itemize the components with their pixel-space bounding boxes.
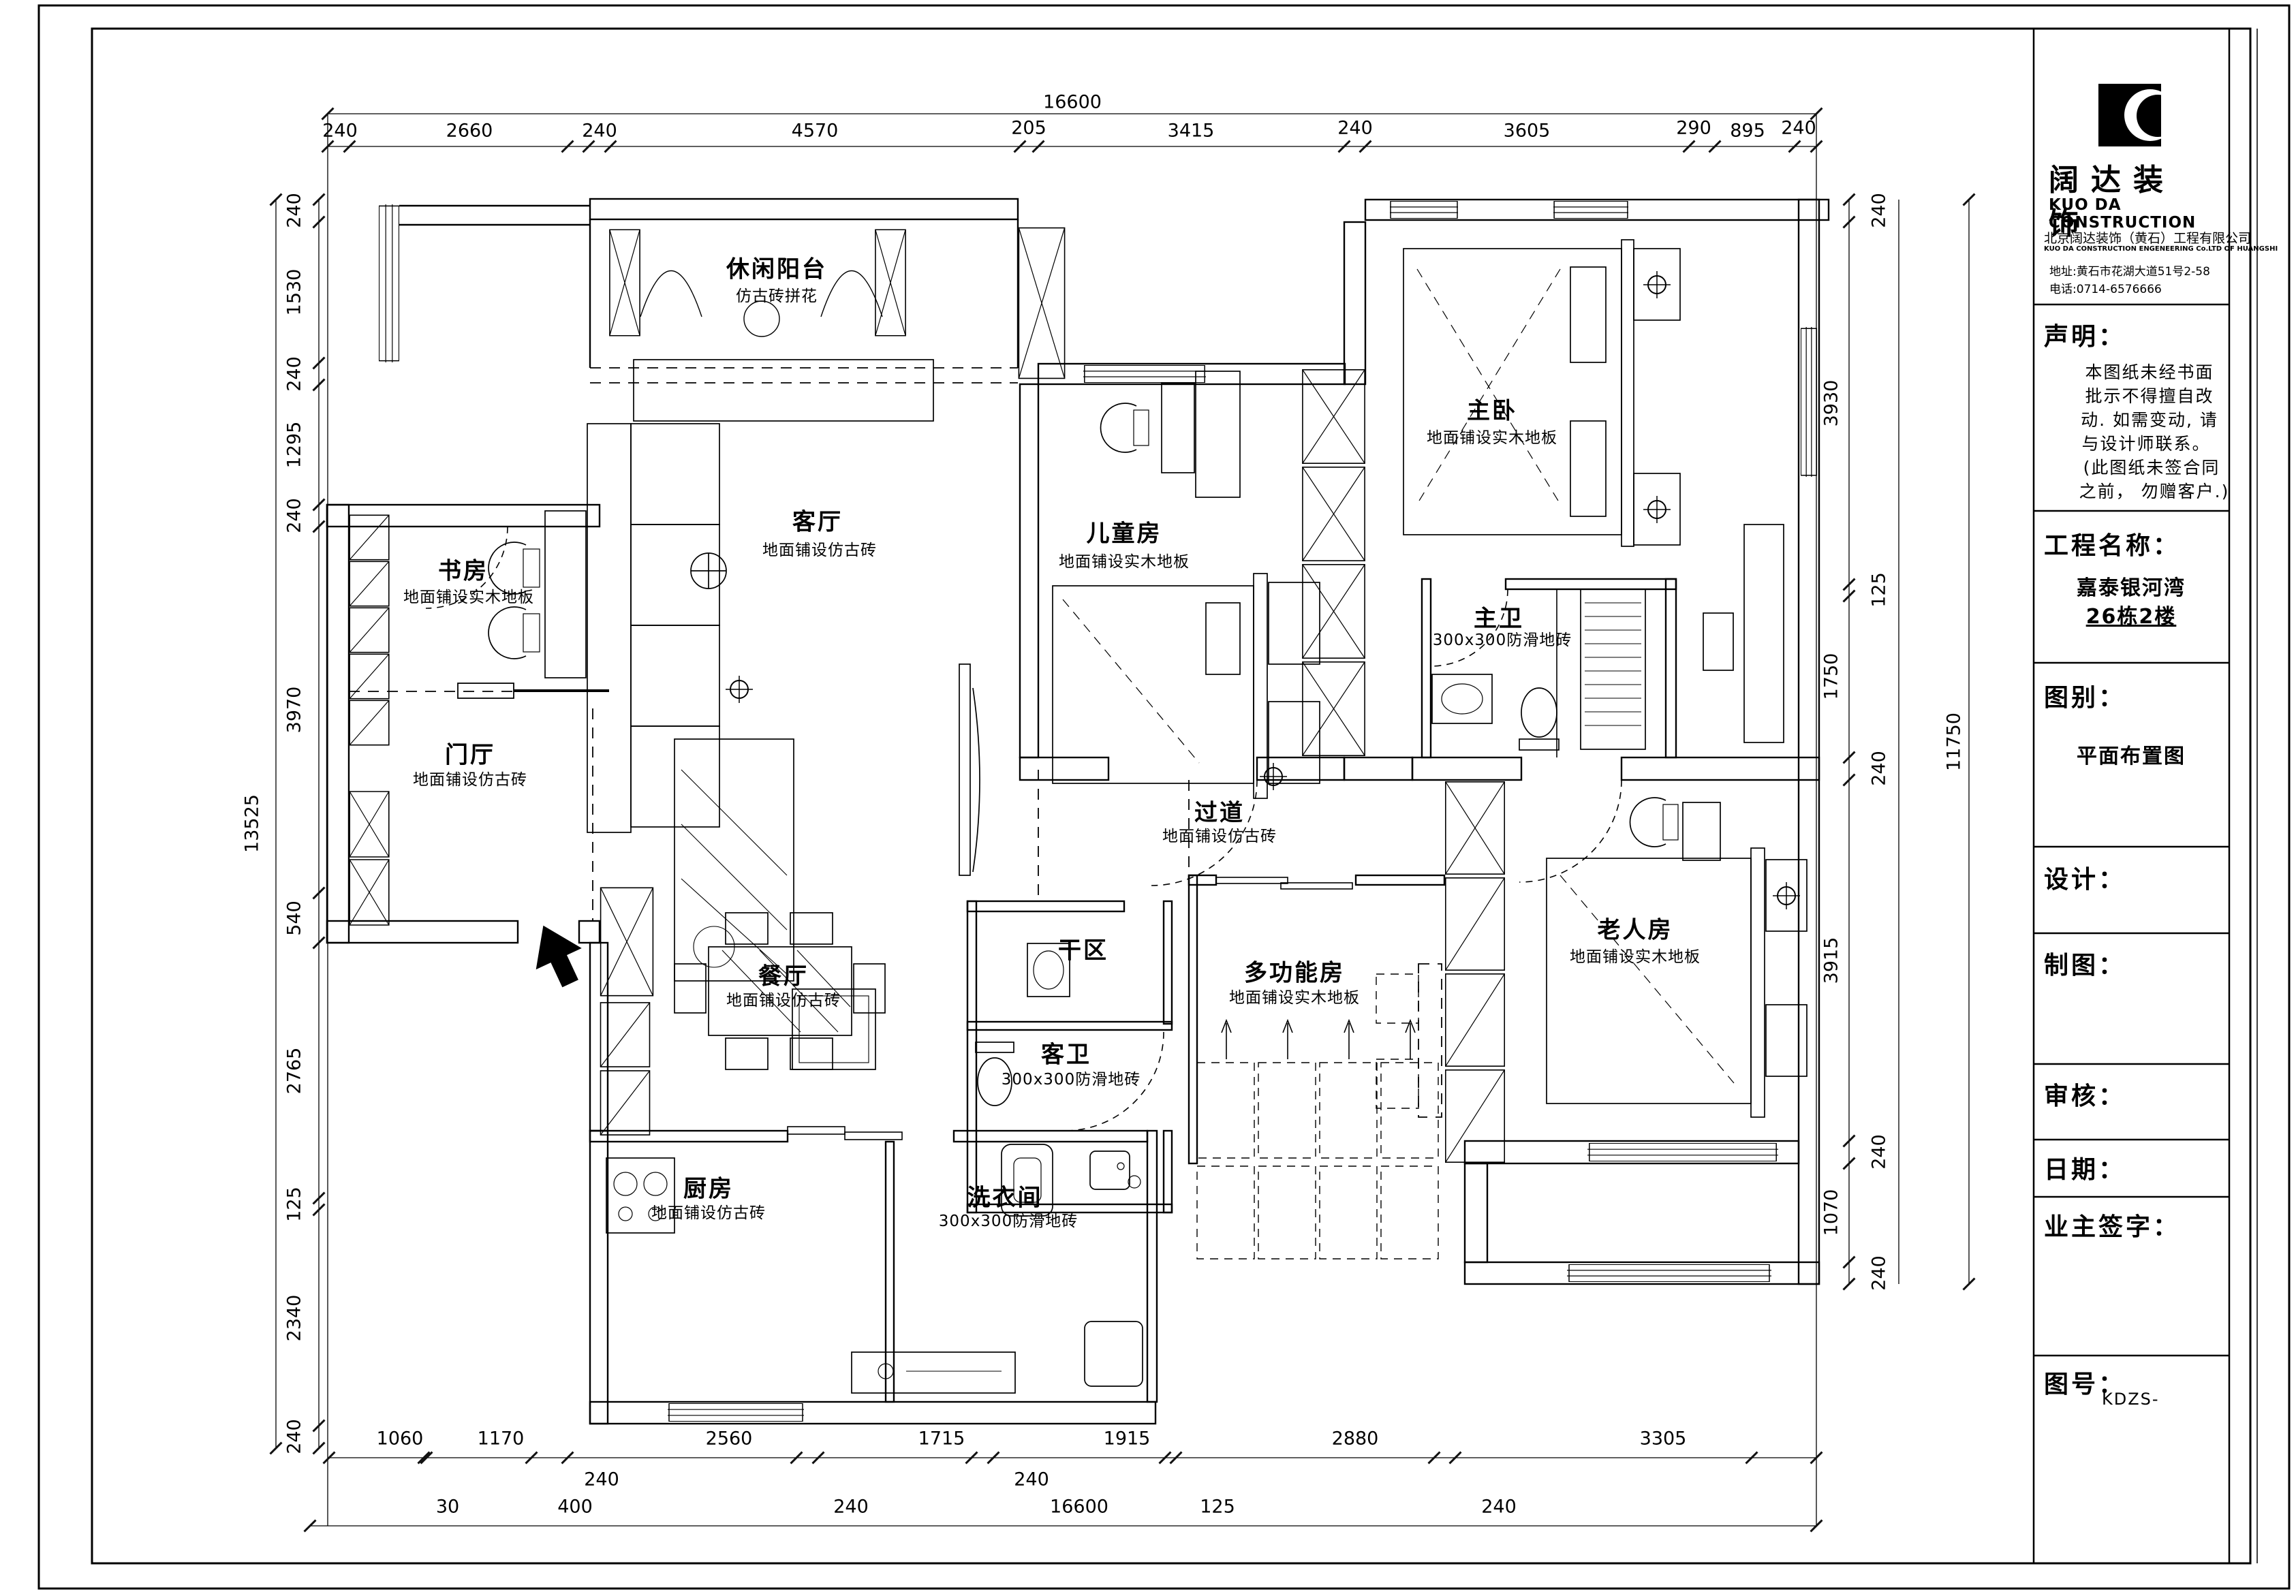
dimension-label: 11750	[1944, 713, 1965, 771]
company-address: 地址:黄石市花湖大道51号2-58	[2049, 262, 2210, 279]
room-label: 300x300防滑地砖	[939, 1208, 1078, 1231]
room-label: 老人房	[1598, 911, 1673, 945]
dimension-label: 1715	[918, 1428, 965, 1450]
dimension-label: 240	[1869, 1134, 1890, 1170]
sofa	[587, 360, 933, 832]
dimension-label: 1915	[1104, 1428, 1151, 1450]
dimension-label: 240	[1014, 1469, 1049, 1490]
room-label: 地面铺设仿古砖	[413, 766, 527, 789]
drawing-type-value: 平面布置图	[2077, 739, 2186, 769]
dimension-label: 240	[1337, 118, 1373, 139]
dimension-label: 16600	[1050, 1497, 1108, 1518]
dimension-label: 240	[1781, 118, 1816, 139]
room-label: 地面铺设实木地板	[1229, 984, 1360, 1007]
dimension-label: 1750	[1821, 653, 1842, 700]
review-label: 审核：	[2044, 1076, 2126, 1112]
project-name-line1: 嘉泰银河湾	[2077, 571, 2186, 601]
dimension-label: 240	[1869, 751, 1890, 786]
children-bed	[1053, 574, 1320, 798]
children-desk	[1101, 371, 1240, 497]
dimension-label: 16600	[1043, 92, 1102, 113]
dimension-label: 3930	[1821, 380, 1842, 427]
room-label: 地面铺设仿古砖	[1162, 823, 1277, 846]
tatami	[1197, 974, 1438, 1259]
dimension-label: 2660	[446, 121, 493, 142]
room-label: 地面铺设实木地板	[1059, 548, 1190, 572]
master-bed	[1403, 240, 1680, 546]
walls	[327, 199, 1829, 1424]
tatami-arrows	[1222, 1020, 1415, 1059]
room-label: 休闲阳台	[726, 251, 827, 284]
dimension-label: 240	[284, 1419, 305, 1454]
dimension-label: 240	[582, 121, 617, 142]
design-label: 设计：	[2044, 860, 2126, 895]
room-label: 仿古砖拼花	[736, 283, 818, 306]
company-logo	[2098, 84, 2161, 146]
master-dresser	[1703, 525, 1784, 742]
elderly-chair	[1630, 798, 1720, 860]
dimension-label: 240	[1481, 1497, 1517, 1518]
dimension-label: 895	[1730, 121, 1765, 142]
statement-line: 动. 如需变动, 请	[2081, 407, 2218, 431]
project-name-line2: 26栋2楼	[2086, 599, 2177, 629]
dimension-label: 2340	[284, 1295, 305, 1342]
room-label: 门厅	[445, 736, 495, 770]
company-full-cn: 北京阔达装饰（黄石）工程有限公司	[2044, 228, 2251, 247]
dimension-label: 125	[1869, 572, 1890, 608]
company-phone: 电话:0714-6576666	[2049, 279, 2162, 296]
room-label: 地面铺设仿古砖	[762, 537, 877, 560]
dimension-label: 3605	[1504, 121, 1551, 142]
kitchen-fixtures	[606, 1158, 1015, 1393]
drawing-type-label: 图别：	[2044, 678, 2126, 713]
dimension-label: 240	[322, 121, 358, 142]
drawing-sheet: 休闲阳台仿古砖拼花书房地面铺设实木地板客厅地面铺设仿古砖儿童房地面铺设实木地板主…	[0, 0, 2296, 1596]
room-label: 主卧	[1467, 392, 1517, 426]
draft-label: 制图：	[2044, 945, 2126, 981]
study-sliding-door	[458, 683, 609, 698]
dimension-label: 1170	[478, 1428, 525, 1450]
room-label: 地面铺设实木地板	[1427, 424, 1557, 448]
elderly-bed	[1547, 848, 1807, 1117]
dimension-label: 125	[1200, 1497, 1235, 1518]
dimension-label: 400	[557, 1497, 593, 1518]
company-full-en: KUO DA CONSTRUCTION ENGENEERING Co.LTD O…	[2044, 245, 2278, 253]
dimension-label: 3415	[1168, 121, 1215, 142]
drawing-no-value: KDZS-	[2102, 1390, 2160, 1409]
master-bath-fixtures	[1432, 589, 1645, 750]
dimension-label: 1070	[1821, 1189, 1842, 1236]
dimension-label: 290	[1676, 118, 1711, 139]
room-label: 300x300防滑地砖	[1433, 627, 1572, 650]
dimension-label: 240	[584, 1469, 619, 1490]
dimension-label: 1295	[284, 422, 305, 469]
room-label: 地面铺设仿古砖	[726, 987, 841, 1010]
room-label: 多功能房	[1244, 954, 1345, 988]
dimension-label: 1060	[377, 1428, 424, 1450]
dimension-label: 125	[284, 1187, 305, 1222]
dimension-label: 540	[284, 901, 305, 936]
room-label: 地面铺设实木地板	[1570, 943, 1701, 967]
dimension-label: 30	[436, 1497, 459, 1518]
floor-plan-drawing	[0, 0, 2296, 1596]
ceiling-marks	[726, 271, 1800, 909]
dimension-label: 205	[1011, 118, 1046, 139]
dimension-label: 2880	[1332, 1428, 1379, 1450]
dimension-label: 240	[1869, 1255, 1890, 1291]
statement-label: 声明：	[2044, 317, 2126, 352]
room-label: 地面铺设实木地板	[403, 584, 534, 607]
room-label: 厨房	[683, 1170, 734, 1204]
wardrobes-and-columns	[350, 228, 1504, 1163]
statement-line: (此图纸未签合同	[2083, 454, 2220, 479]
room-label: 地面铺设仿古砖	[651, 1200, 766, 1223]
statement-line: 与设计师联系。	[2081, 431, 2210, 455]
tv-wall	[959, 664, 980, 875]
company-name-en: KUO DA CONSTRUCTION	[2049, 196, 2214, 232]
room-label: 干区	[1058, 932, 1108, 965]
dimension-label: 13525	[242, 794, 263, 853]
dimension-label: 240	[284, 193, 305, 228]
room-label: 客厅	[792, 503, 843, 537]
dimension-label: 240	[284, 498, 305, 533]
statement-line: 批示不得擅自改	[2085, 383, 2214, 407]
date-label: 日期：	[2044, 1150, 2126, 1185]
dimension-lines	[276, 114, 1969, 1526]
dimension-label: 240	[1869, 193, 1890, 228]
dimension-label: 3915	[1821, 937, 1842, 984]
dimension-label: 2560	[706, 1428, 753, 1450]
laundry-fixtures	[1085, 1151, 1143, 1386]
dimension-label: 240	[284, 356, 305, 392]
room-label: 300x300防滑地砖	[1002, 1066, 1141, 1089]
entry-arrow	[521, 915, 593, 994]
room-label: 书房	[438, 552, 488, 586]
room-label: 客卫	[1041, 1036, 1091, 1069]
owner-sign-label: 业主签字：	[2044, 1207, 2180, 1242]
title-block-grid	[2034, 29, 2229, 1563]
statement-line: 之前， 勿赠客户.)	[2079, 478, 2230, 503]
room-label: 餐厅	[758, 958, 809, 991]
statement-line: 本图纸未经书面	[2085, 359, 2214, 384]
sheet-border	[39, 5, 2289, 1589]
room-label: 儿童房	[1087, 515, 1162, 548]
dimension-label: 240	[833, 1497, 869, 1518]
project-name-label: 工程名称：	[2044, 526, 2180, 561]
dimension-label: 3305	[1640, 1428, 1687, 1450]
dimension-label: 3970	[284, 687, 305, 734]
dimension-label: 2765	[284, 1048, 305, 1095]
dimension-label: 4570	[792, 121, 839, 142]
dimension-label: 1530	[284, 269, 305, 316]
